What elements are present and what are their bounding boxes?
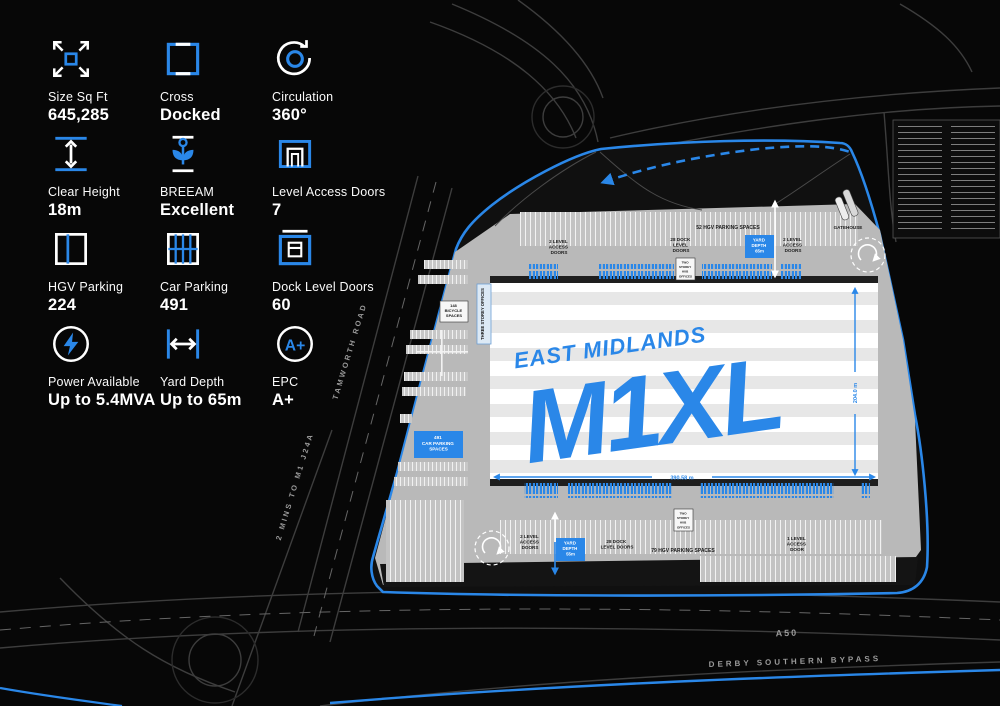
breeam-plant-icon [160, 131, 272, 181]
spec-dock-level-doors: Dock Level Doors 60 [272, 226, 432, 321]
car-parking-box: 491 CAR PARKING SPACES [414, 431, 463, 458]
spec-yard-depth: Yard Depth Up to 65m [160, 321, 272, 416]
spec-clear-height: Clear Height 18m [48, 131, 160, 226]
cross-docked-icon [160, 36, 272, 86]
site-plan-page: THREE STOREY OFFICES TWO STOREY HUB OFFI… [0, 0, 1000, 706]
label-m1-j24a: 2 MINS TO M1 J24A [274, 431, 315, 541]
spec-size: Size Sq Ft 645,285 [48, 36, 160, 131]
hub-offices-top: TWO STOREY HUB OFFICES [676, 258, 695, 280]
hub-offices-bottom: TWO STOREY HUB OFFICES [674, 509, 693, 531]
spec-hgv-parking: HGV Parking 224 [48, 226, 160, 321]
svg-text:THREE STOREY OFFICES: THREE STOREY OFFICES [480, 288, 485, 340]
yard-depth-65-box: YARD DEPTH 65m [745, 235, 774, 258]
offsite-parking-lot [893, 120, 1000, 238]
power-bolt-icon [48, 321, 160, 371]
circulation-icon [272, 36, 432, 86]
three-storey-offices: THREE STOREY OFFICES [477, 284, 491, 344]
svg-text:390.58 m: 390.58 m [670, 476, 693, 482]
spec-cross-docked: Cross Docked [160, 36, 272, 131]
svg-text:204.0 m: 204.0 m [853, 383, 859, 403]
spec-level-access-doors: Level Access Doors 7 [272, 131, 432, 226]
spec-circulation: Circulation 360° [272, 36, 432, 131]
svg-text:GATEHOUSE: GATEHOUSE [834, 225, 863, 230]
label-a50: A50 [775, 628, 798, 639]
label-hgv-bottom: 79 HGV PARKING SPACES [651, 548, 715, 554]
expand-icon [48, 36, 160, 86]
spec-car-parking: Car Parking 491 [160, 226, 272, 321]
yard-depth-icon [160, 321, 272, 371]
bicycle-spaces-box: 148 BICYCLE SPACES [440, 301, 468, 322]
spec-power: Power Available Up to 5.4MVA [48, 321, 160, 416]
hgv-parking-icon [48, 226, 160, 276]
label-2-level-bottom-left: 2 LEVEL ACCESS DOORS [520, 534, 540, 550]
level-access-door-icon [272, 131, 432, 181]
label-hgv-top: 52 HGV PARKING SPACES [696, 225, 760, 231]
car-parking-icon [160, 226, 272, 276]
svg-text:A+: A+ [285, 337, 305, 354]
label-2-level-top-left: 2 LEVEL ACCESS DOORS [549, 239, 569, 255]
spec-epc: A+ EPC A+ [272, 321, 432, 416]
label-dock-top: 28 DOCK LEVEL DOORS [670, 237, 691, 253]
clear-height-icon [48, 131, 160, 181]
spec-panel: Size Sq Ft 645,285 Cross Docked Circulat… [48, 36, 432, 416]
label-2-level-top-right: 2 LEVEL ACCESS DOORS [783, 237, 803, 253]
dock-level-door-icon [272, 226, 432, 276]
spec-breeam: BREEAM Excellent [160, 131, 272, 226]
epc-rating-icon: A+ [272, 321, 432, 371]
yard-depth-55-box: YARD DEPTH 55m [556, 538, 585, 561]
